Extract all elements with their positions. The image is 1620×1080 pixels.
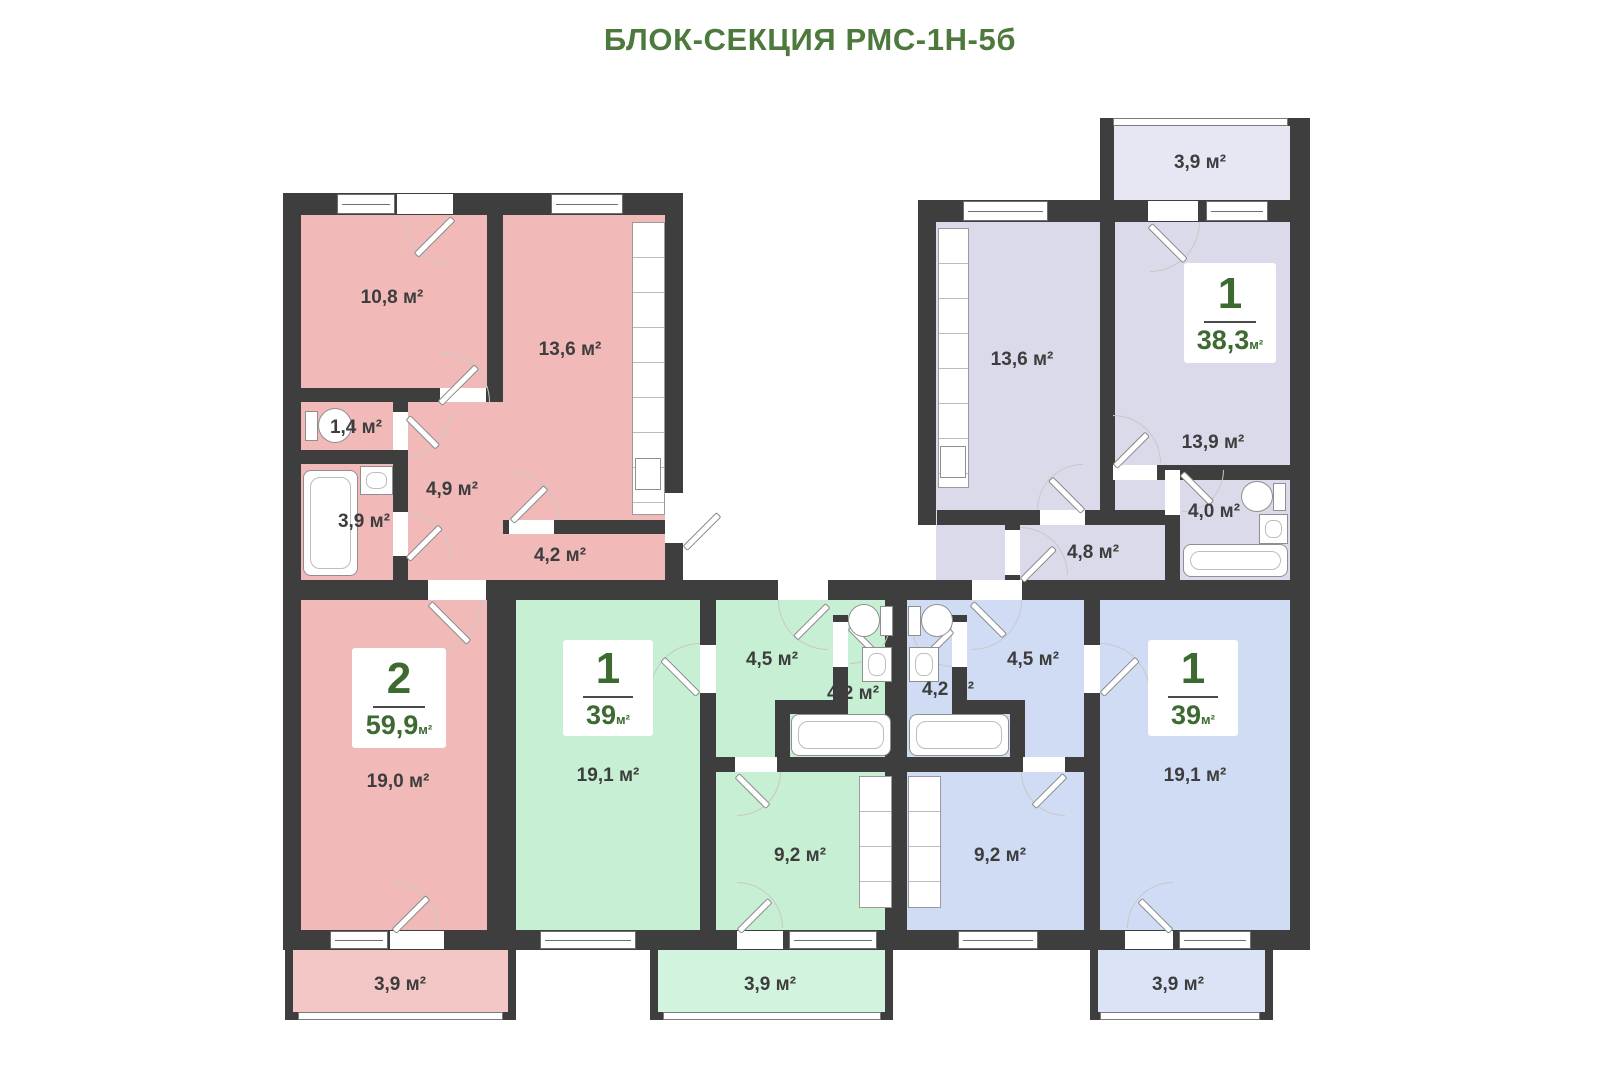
room-area-label: 1,4 м²	[330, 417, 382, 439]
door-opening	[1113, 465, 1157, 480]
apartment-rooms-count: 1	[596, 647, 620, 691]
sink-icon	[868, 653, 886, 676]
toilet-icon	[848, 604, 880, 637]
room-area-label: 4,0 м²	[1188, 501, 1240, 523]
door-opening	[393, 412, 408, 450]
window	[958, 931, 1038, 949]
apartment-card: 139м²	[563, 640, 653, 736]
door-opening	[1125, 931, 1173, 949]
kitchen-sink-icon	[940, 446, 966, 478]
wall	[508, 950, 516, 1020]
window	[1113, 118, 1288, 126]
wall	[285, 950, 293, 1020]
window	[663, 1012, 881, 1020]
apartment-card: 138,3м²	[1184, 263, 1276, 363]
kitchen-sink-icon	[635, 458, 661, 490]
wall	[1265, 950, 1273, 1020]
wall	[1290, 118, 1310, 580]
room-area-label: 3,9 м²	[1174, 152, 1226, 174]
window	[1100, 1012, 1260, 1020]
apartment-rooms-count: 2	[387, 657, 411, 701]
sink-icon	[1265, 520, 1282, 538]
toilet-icon	[305, 411, 318, 441]
wall	[1010, 700, 1025, 757]
door-opening	[1148, 201, 1198, 221]
door-opening	[778, 580, 828, 600]
page-title: БЛОК-СЕКЦИЯ РМС-1Н-5б	[0, 22, 1620, 58]
room-area-label: 13,9 м²	[1182, 432, 1245, 454]
wall	[301, 450, 400, 464]
door-opening	[737, 931, 783, 949]
toilet-icon	[1241, 481, 1273, 512]
apartment-total-area: 38,3м²	[1197, 327, 1264, 354]
bathtub-icon	[798, 721, 884, 749]
room-area-label: 13,6 м²	[991, 349, 1054, 371]
room-area-label: 19,1 м²	[1164, 765, 1227, 787]
door-opening	[700, 645, 716, 693]
room-area-label: 9,2 м²	[774, 845, 826, 867]
wall	[918, 200, 936, 525]
room-area-label: 3,9 м²	[1152, 974, 1204, 996]
room-area-label: 4,9 м²	[426, 479, 478, 501]
room-area-label: 19,1 м²	[577, 765, 640, 787]
door-opening	[397, 194, 453, 214]
door-opening	[428, 580, 486, 600]
door-opening	[833, 622, 848, 667]
door-opening	[1023, 757, 1065, 772]
toilet-icon	[880, 606, 893, 636]
door-opening	[390, 931, 444, 949]
apartment-total-area-value: 59,9	[366, 710, 419, 740]
window	[337, 194, 395, 214]
apartment-total-area-unit: м²	[418, 722, 432, 737]
door-opening	[665, 493, 683, 543]
apartment-total-area: 39м²	[586, 702, 630, 729]
card-divider	[373, 706, 426, 708]
room-area-label: 3,9 м²	[374, 974, 426, 996]
room-area-label: 4,2 м²	[922, 679, 974, 701]
wall	[893, 580, 1310, 600]
wall	[775, 700, 790, 757]
wall	[885, 950, 893, 1020]
wall	[283, 193, 301, 930]
window	[1179, 931, 1251, 949]
apartment-total-area-value: 38,3	[1197, 325, 1250, 355]
window	[551, 194, 623, 214]
kitchen-counter-icon	[859, 776, 892, 908]
apartment-card: 139м²	[1148, 640, 1238, 736]
room-area-label: 4,2 м²	[827, 683, 879, 705]
room-area-label: 4,5 м²	[746, 649, 798, 671]
room-area-label: 9,2 м²	[974, 845, 1026, 867]
apartment-total-area: 59,9м²	[366, 712, 433, 739]
apartment-total-area-unit: м²	[616, 712, 630, 727]
wall	[665, 193, 683, 493]
sink-icon	[366, 472, 387, 489]
card-divider	[583, 696, 633, 698]
wall	[487, 215, 503, 388]
room-area-label: 3,9 м²	[744, 974, 796, 996]
window	[789, 931, 877, 949]
door-opening	[952, 622, 967, 667]
card-divider	[1168, 696, 1218, 698]
wall	[1100, 118, 1114, 208]
window	[1206, 201, 1268, 221]
toilet-icon	[1273, 483, 1286, 511]
card-divider	[1204, 321, 1256, 323]
door-opening	[393, 512, 408, 556]
room-area-label: 19,0 м²	[367, 771, 430, 793]
room-area-label: 13,6 м²	[539, 339, 602, 361]
window	[963, 201, 1048, 221]
wall	[1290, 580, 1310, 930]
room-area-label: 4,8 м²	[1067, 542, 1119, 564]
door-opening	[735, 757, 777, 772]
apartment-rooms-count: 1	[1181, 647, 1205, 691]
room-area-label: 3,9 м²	[338, 511, 390, 533]
apartment-total-area: 39м²	[1171, 702, 1215, 729]
door-opening	[1165, 470, 1180, 515]
room-area-label: 4,2 м²	[534, 545, 586, 567]
window	[298, 1012, 503, 1020]
bathtub-icon	[1190, 551, 1281, 570]
apartment-rooms-count: 1	[1218, 272, 1242, 316]
apartment-total-area-value: 39	[1171, 700, 1201, 730]
apartment-card: 259,9м²	[352, 648, 446, 748]
window	[330, 931, 388, 949]
room-area-label: 4,5 м²	[1007, 649, 1059, 671]
wall	[1090, 950, 1098, 1020]
door-leaf	[683, 512, 722, 551]
sink-icon	[915, 653, 933, 676]
wall	[487, 580, 516, 930]
wall	[650, 950, 658, 1020]
door-opening	[972, 580, 1022, 600]
apartment-total-area-unit: м²	[1201, 712, 1215, 727]
apartment-total-area-value: 39	[586, 700, 616, 730]
toilet-icon	[921, 604, 953, 637]
door-opening	[1084, 645, 1100, 693]
bathtub-icon	[916, 721, 1002, 749]
door-opening	[1005, 530, 1020, 575]
toilet-icon	[908, 606, 921, 636]
window	[540, 931, 636, 949]
kitchen-counter-icon	[908, 776, 941, 908]
floor-plan-page: БЛОК-СЕКЦИЯ РМС-1Н-5б 10,8 м²13,6 м²1,4 …	[0, 0, 1620, 1080]
apartment-total-area-unit: м²	[1249, 337, 1263, 352]
room-area-label: 10,8 м²	[361, 287, 424, 309]
